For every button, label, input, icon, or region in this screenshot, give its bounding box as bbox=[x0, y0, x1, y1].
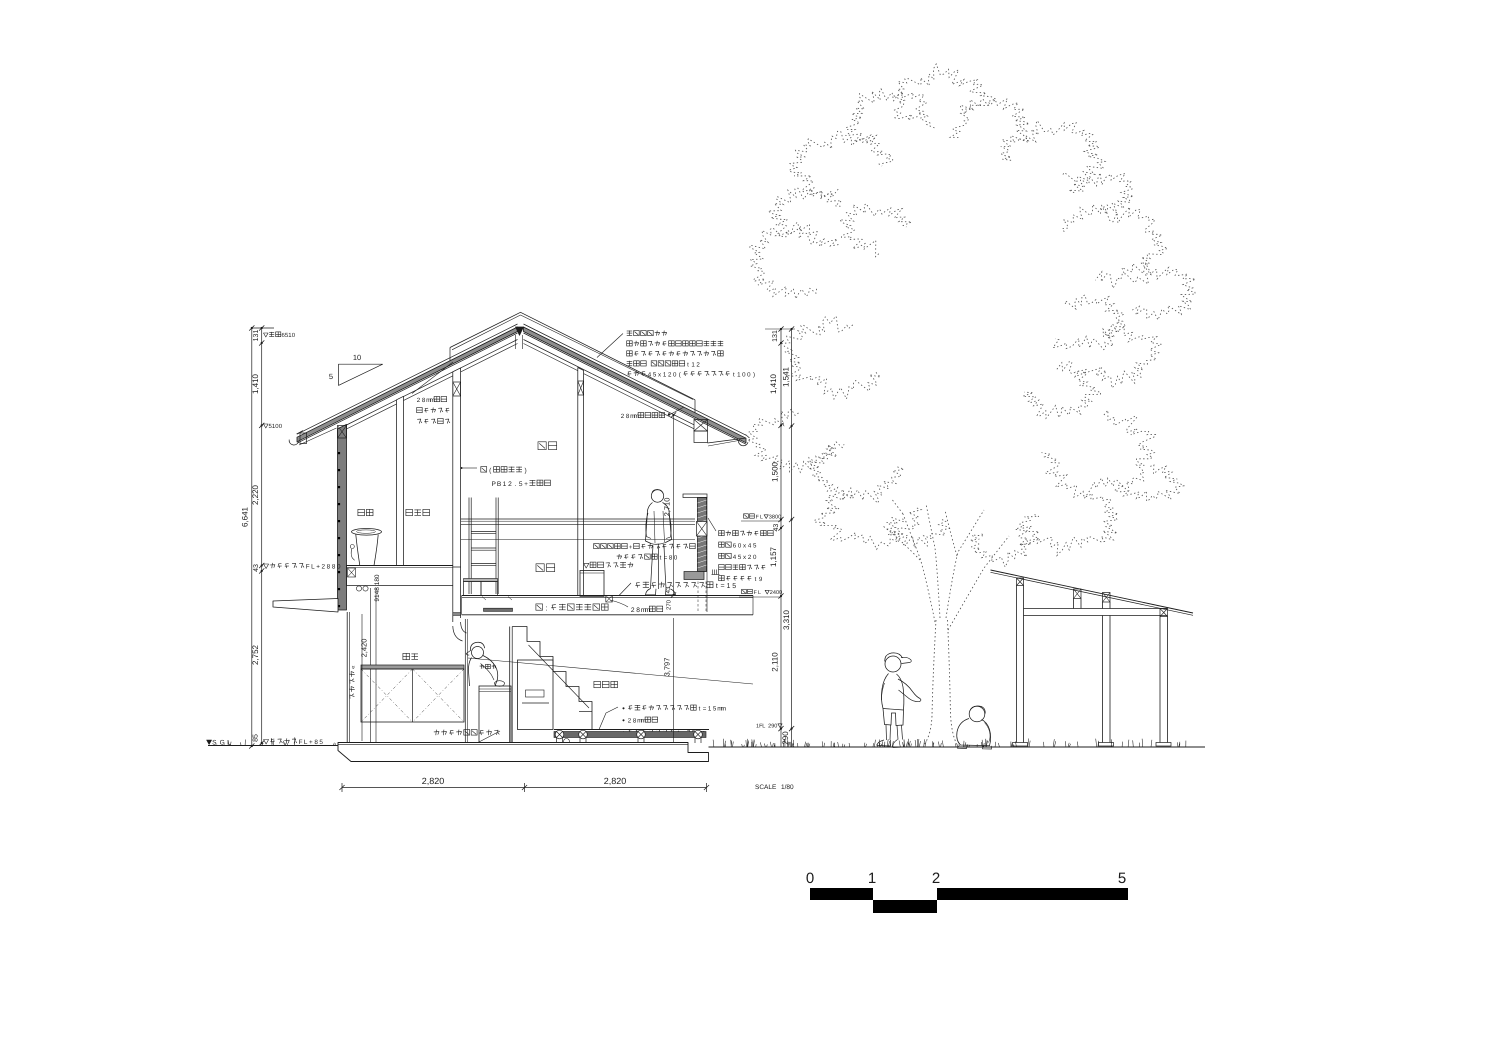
svg-text:8: 8 bbox=[332, 564, 336, 571]
svg-text:+: + bbox=[309, 739, 313, 746]
svg-text:8: 8 bbox=[327, 564, 331, 571]
svg-text:t: t bbox=[716, 583, 718, 590]
svg-text:+: + bbox=[524, 481, 528, 488]
svg-text:4: 4 bbox=[648, 371, 652, 378]
svg-text:1: 1 bbox=[737, 371, 741, 378]
svg-text:2: 2 bbox=[628, 718, 632, 725]
svg-text:«: « bbox=[350, 665, 357, 669]
svg-text:.: . bbox=[514, 481, 516, 488]
svg-text:L: L bbox=[758, 590, 761, 596]
svg-text:8: 8 bbox=[314, 739, 318, 746]
svg-text:8: 8 bbox=[669, 555, 673, 562]
svg-text:2: 2 bbox=[748, 554, 752, 561]
svg-text:1,541: 1,541 bbox=[782, 366, 791, 387]
svg-text:SCALE: SCALE bbox=[755, 784, 777, 791]
svg-text:0: 0 bbox=[774, 724, 777, 730]
svg-text:2,110: 2,110 bbox=[771, 652, 780, 672]
svg-text:5: 5 bbox=[1118, 870, 1126, 887]
svg-text:43: 43 bbox=[773, 524, 780, 532]
svg-text:5: 5 bbox=[329, 372, 333, 381]
svg-text:1: 1 bbox=[868, 870, 876, 887]
svg-text:0: 0 bbox=[674, 555, 678, 562]
svg-text:1,410: 1,410 bbox=[251, 373, 260, 394]
svg-text:131: 131 bbox=[253, 330, 260, 342]
svg-text:+: + bbox=[316, 564, 320, 571]
svg-text:9: 9 bbox=[759, 576, 763, 583]
svg-text:5: 5 bbox=[738, 554, 742, 561]
svg-text:1: 1 bbox=[726, 583, 730, 590]
svg-text:2,710: 2,710 bbox=[663, 498, 672, 517]
svg-text:F: F bbox=[306, 564, 310, 571]
svg-text:0: 0 bbox=[738, 543, 742, 550]
svg-text:2: 2 bbox=[508, 481, 512, 488]
svg-text:1,500: 1,500 bbox=[771, 461, 780, 482]
svg-text:0: 0 bbox=[753, 554, 757, 561]
svg-text:43: 43 bbox=[253, 564, 260, 572]
svg-text:2: 2 bbox=[417, 397, 421, 404]
svg-text:): ) bbox=[753, 371, 755, 378]
svg-text:1: 1 bbox=[663, 371, 667, 378]
svg-text::: : bbox=[546, 604, 548, 613]
svg-text:L: L bbox=[311, 564, 315, 571]
svg-text:5: 5 bbox=[732, 583, 736, 590]
svg-text:8: 8 bbox=[636, 607, 640, 614]
svg-text:2: 2 bbox=[696, 361, 700, 368]
svg-text:5: 5 bbox=[653, 371, 657, 378]
svg-text:5: 5 bbox=[519, 481, 523, 488]
svg-text:2,752: 2,752 bbox=[251, 644, 260, 665]
svg-text:10: 10 bbox=[353, 353, 361, 362]
svg-text:t: t bbox=[699, 706, 701, 713]
svg-text:1: 1 bbox=[503, 481, 507, 488]
svg-text:0: 0 bbox=[779, 590, 782, 596]
svg-text:270: 270 bbox=[666, 599, 673, 610]
svg-text:4: 4 bbox=[733, 554, 737, 561]
svg-text:0: 0 bbox=[337, 564, 341, 571]
svg-text:0: 0 bbox=[778, 515, 781, 521]
svg-text:L: L bbox=[762, 724, 765, 730]
svg-text:=: = bbox=[721, 583, 725, 590]
svg-text:t: t bbox=[733, 371, 735, 378]
svg-text:2,820: 2,820 bbox=[604, 776, 627, 786]
svg-text:m: m bbox=[645, 607, 651, 614]
svg-text:5: 5 bbox=[319, 739, 323, 746]
svg-text:m: m bbox=[721, 706, 726, 713]
svg-text:0: 0 bbox=[806, 870, 814, 887]
svg-text:9148 180: 9148 180 bbox=[374, 574, 381, 601]
svg-text:): ) bbox=[524, 468, 526, 475]
svg-text:t: t bbox=[660, 555, 662, 562]
svg-text:43: 43 bbox=[665, 586, 672, 593]
svg-text:131: 131 bbox=[772, 330, 779, 342]
svg-text:=: = bbox=[703, 706, 707, 713]
svg-text:2: 2 bbox=[668, 371, 672, 378]
svg-text:4: 4 bbox=[748, 543, 752, 550]
svg-text:F: F bbox=[756, 515, 759, 521]
svg-text:2: 2 bbox=[631, 607, 635, 614]
svg-text:0: 0 bbox=[673, 371, 677, 378]
svg-text:t: t bbox=[755, 576, 757, 583]
svg-text:1/80: 1/80 bbox=[781, 784, 794, 791]
svg-text:5: 5 bbox=[753, 543, 757, 550]
svg-text:1: 1 bbox=[691, 361, 695, 368]
svg-text:2: 2 bbox=[932, 870, 940, 887]
svg-text:F: F bbox=[754, 590, 757, 596]
svg-text:1: 1 bbox=[708, 706, 712, 713]
svg-text:0: 0 bbox=[742, 371, 746, 378]
svg-text:6: 6 bbox=[733, 543, 737, 550]
svg-text:P: P bbox=[491, 481, 496, 488]
svg-text:1,157: 1,157 bbox=[769, 546, 778, 567]
svg-text:t: t bbox=[687, 361, 689, 368]
svg-text:0: 0 bbox=[747, 371, 751, 378]
svg-text:L: L bbox=[760, 515, 763, 521]
svg-text:2,420: 2,420 bbox=[360, 639, 369, 658]
svg-text:85: 85 bbox=[253, 734, 260, 742]
svg-text:1,410: 1,410 bbox=[769, 373, 778, 394]
svg-text:3,310: 3,310 bbox=[782, 609, 791, 630]
svg-text:2,820: 2,820 bbox=[422, 776, 445, 786]
svg-text:+: + bbox=[629, 544, 633, 551]
svg-text:2: 2 bbox=[621, 413, 625, 420]
svg-text:3,797: 3,797 bbox=[663, 658, 672, 677]
svg-text:2,220: 2,220 bbox=[251, 484, 260, 505]
svg-text:F: F bbox=[299, 739, 303, 746]
svg-text:2: 2 bbox=[322, 564, 326, 571]
svg-text:6,641: 6,641 bbox=[241, 506, 250, 527]
svg-text:B: B bbox=[497, 481, 502, 488]
svg-text:L: L bbox=[304, 739, 308, 746]
